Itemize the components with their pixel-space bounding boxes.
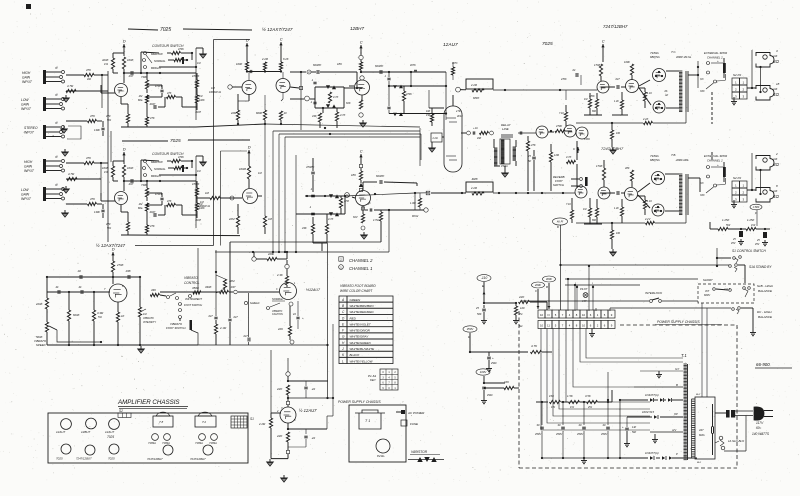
svg-text:6 BO: 6 BO (584, 137, 590, 141)
svg-text:22K: 22K (276, 387, 283, 391)
svg-text:M812: M812 (412, 215, 419, 218)
svg-text:45AF: 45AF (487, 394, 493, 397)
svg-text:S1: S1 (519, 324, 523, 328)
svg-text:C: C (360, 40, 363, 45)
svg-text:.01: .01 (55, 285, 59, 289)
svg-text:.047: .047 (615, 78, 620, 81)
svg-text:10: 10 (582, 313, 586, 317)
svg-text:T.1: T.1 (681, 353, 687, 358)
svg-text:820PF: 820PF (375, 64, 384, 68)
svg-text:½ 12AU7: ½ 12AU7 (299, 408, 317, 413)
svg-text:CHANNEL 2: CHANNEL 2 (707, 56, 723, 60)
svg-text:2.5F: 2.5F (455, 110, 461, 113)
svg-text:66-900: 66-900 (756, 362, 770, 367)
svg-text:HIGH: HIGH (24, 160, 33, 164)
svg-text:4Ω: 4Ω (773, 92, 779, 97)
svg-text:12AU7: 12AU7 (443, 42, 458, 48)
svg-text:BLK: BLK (696, 394, 701, 396)
svg-text:AMPLIFIER CHASSIS: AMPLIFIER CHASSIS (117, 399, 180, 406)
svg-text:GREEN: GREEN (350, 298, 362, 302)
svg-text:WHITE/RED/RED: WHITE/RED/RED (350, 310, 375, 314)
svg-text:15K: 15K (549, 394, 554, 398)
svg-text:INPUT: INPUT (24, 130, 35, 134)
svg-text:-110: -110 (481, 276, 488, 280)
svg-text:47K: 47K (86, 156, 91, 160)
svg-text:50F: 50F (632, 431, 637, 434)
svg-text:WHITE/VIOLET: WHITE/VIOLET (350, 322, 372, 326)
svg-text:-66PF: -66PF (471, 178, 478, 181)
svg-text:47K: 47K (90, 197, 95, 201)
svg-text:10: 10 (582, 323, 586, 327)
svg-text:12BU7: 12BU7 (81, 430, 91, 434)
svg-text:447: 447 (699, 428, 704, 432)
svg-text:2.2K: 2.2K (642, 117, 649, 121)
svg-text:7.1K: 7.1K (559, 112, 564, 115)
svg-text:100F: 100F (127, 166, 134, 170)
svg-text:4.7K: 4.7K (566, 155, 572, 159)
svg-text:180: 180 (616, 232, 621, 235)
svg-text:T.C.: T.C. (671, 50, 677, 54)
svg-text:WHITE/GRAY: WHITE/GRAY (350, 335, 370, 339)
svg-text:BLACK: BLACK (350, 353, 361, 357)
svg-text:1.1K: 1.1K (647, 200, 652, 203)
svg-text:WHITE/BRN/BRN: WHITE/BRN/BRN (350, 304, 375, 308)
svg-text:5W: 5W (726, 223, 731, 227)
svg-text:12AU7: 12AU7 (105, 430, 115, 434)
svg-text:VIBRATO: VIBRATO (184, 276, 198, 280)
svg-text:140 WATTS: 140 WATTS (752, 432, 770, 436)
svg-text:22K: 22K (277, 327, 283, 331)
svg-text:JAK: JAK (773, 158, 778, 161)
svg-text:GAIN: GAIN (21, 192, 30, 196)
svg-text:43K: 43K (312, 114, 317, 118)
svg-text:7025: 7025 (160, 27, 171, 33)
svg-text:VIBRATO: VIBRATO (143, 317, 154, 320)
svg-text:.02: .02 (77, 269, 81, 273)
svg-text:7189A: 7189A (209, 441, 217, 445)
svg-text:.22: .22 (311, 387, 316, 391)
svg-text:4.7M: 4.7M (67, 84, 74, 88)
svg-text:P: P (676, 452, 678, 456)
svg-text:47K: 47K (167, 200, 172, 203)
svg-text:BLK: BLK (697, 462, 702, 464)
svg-text:1M: 1M (199, 95, 202, 98)
svg-text:EXTERNAL SPKR: EXTERNAL SPKR (704, 51, 727, 55)
svg-text:11: 11 (547, 323, 550, 327)
svg-text:ON: ON (700, 79, 704, 81)
svg-text:47K: 47K (150, 224, 155, 228)
svg-text:350V: 350V (467, 327, 475, 331)
svg-text:+: + (492, 356, 494, 360)
svg-text:180: 180 (616, 132, 621, 135)
svg-text:POWER SUPPLY CHASSIS: POWER SUPPLY CHASSIS (338, 400, 381, 404)
svg-text:16K: 16K (426, 110, 431, 113)
svg-text:7189A: 7189A (162, 441, 170, 445)
svg-text:.047: .047 (233, 316, 238, 319)
svg-text:43K: 43K (151, 288, 156, 292)
svg-text:.01: .01 (78, 285, 82, 289)
svg-text:1K: 1K (121, 314, 125, 318)
svg-text:1M: 1M (584, 98, 587, 101)
svg-text:220K: 220K (35, 302, 43, 306)
svg-text:7189A: 7189A (195, 441, 203, 445)
svg-text:2W: 2W (587, 405, 592, 409)
svg-text:+: + (717, 163, 719, 167)
svg-text:1M: 1M (583, 208, 586, 211)
svg-text:82K: 82K (346, 101, 351, 105)
svg-text:470K: 470K (178, 156, 184, 159)
svg-text:C: C (360, 149, 363, 154)
svg-text:100K: 100K (236, 62, 242, 66)
svg-text:100V: 100V (480, 370, 488, 374)
svg-text:450V: 450V (601, 432, 607, 436)
svg-text:170K: 170K (594, 63, 601, 67)
svg-text:12BH7: 12BH7 (350, 26, 364, 31)
svg-text:7247/12BH7: 7247/12BH7 (601, 146, 624, 151)
svg-text:S1 CONTROL SWITCH: S1 CONTROL SWITCH (732, 249, 766, 253)
svg-text:200F: 200F (534, 283, 541, 287)
svg-text:45V: 45V (755, 243, 760, 246)
svg-text:400: 400 (87, 78, 92, 81)
svg-text:AC POWER: AC POWER (407, 411, 425, 415)
svg-text:470HF: 470HF (192, 75, 200, 78)
svg-text:AF: AF (664, 94, 669, 97)
svg-text:BAL: BAL (138, 206, 143, 210)
svg-text:1.4F: 1.4F (614, 100, 619, 103)
svg-text:½12AU7: ½12AU7 (306, 288, 321, 292)
svg-text:SHORT: SHORT (703, 278, 713, 282)
svg-text:2.3K: 2.3K (276, 273, 283, 277)
svg-text:7247/12BH7: 7247/12BH7 (147, 457, 163, 461)
svg-text:OFF: OFF (700, 195, 705, 197)
svg-text:S1B - HIGH: S1B - HIGH (757, 284, 774, 288)
svg-text:1A SLO-BLO: 1A SLO-BLO (728, 439, 745, 443)
svg-text:EXTERNAL SPKR: EXTERNAL SPKR (704, 154, 727, 158)
svg-text:50F: 50F (477, 312, 482, 316)
svg-text:S1: S1 (250, 417, 254, 421)
svg-text:C: C (280, 37, 283, 42)
svg-text:OFF: OFF (700, 91, 705, 93)
svg-text:1%: 1% (104, 170, 109, 174)
svg-text:7025: 7025 (56, 457, 63, 461)
svg-text:WHITE/BL/WHITE: WHITE/BL/WHITE (350, 347, 376, 351)
svg-text:.048: .048 (125, 269, 131, 273)
svg-text:.047: .047 (243, 335, 248, 338)
svg-text:HI FI: HI FI (557, 220, 564, 224)
svg-text:4.7K: 4.7K (328, 217, 334, 221)
svg-text:S2 P2: S2 P2 (733, 73, 742, 77)
svg-text:NORMAL: NORMAL (272, 297, 284, 301)
svg-text:18: 18 (776, 82, 780, 86)
svg-text:100K: 100K (199, 99, 205, 102)
svg-text:INPUT: INPUT (24, 169, 35, 173)
svg-text:S2: S2 (119, 409, 123, 413)
svg-text:350K: 350K (192, 286, 200, 290)
svg-text:+: + (717, 59, 719, 63)
svg-text:CAUTION: CAUTION (272, 313, 283, 316)
svg-text:B: B (676, 383, 678, 387)
svg-text:3.3M: 3.3M (97, 311, 104, 315)
svg-text:100K: 100K (127, 58, 134, 62)
svg-text:117V: 117V (756, 421, 764, 425)
svg-text:.047: .047 (128, 182, 134, 186)
svg-text:P1: P1 (519, 312, 523, 316)
svg-text:CHANNEL 2: CHANNEL 2 (349, 258, 373, 263)
svg-text:47K: 47K (90, 114, 95, 118)
svg-text:12M: 12M (554, 153, 560, 157)
svg-text:600V: 600V (704, 293, 710, 297)
svg-text:450V: 450V (577, 432, 583, 436)
svg-text:B: B (557, 225, 559, 229)
svg-text:JAK: JAK (773, 88, 778, 91)
svg-text:8Ω: 8Ω (773, 59, 779, 64)
svg-text:730K: 730K (141, 183, 147, 187)
svg-text:INPUT: INPUT (21, 107, 32, 111)
svg-text:170K: 170K (596, 164, 603, 168)
svg-text:15F: 15F (426, 114, 431, 117)
svg-text:2.2V: 2.2V (644, 217, 651, 221)
svg-text:INT: INT (705, 289, 710, 293)
svg-text:25AF: 25AF (490, 362, 497, 365)
svg-text:60≈: 60≈ (756, 426, 762, 430)
svg-text:VARISTOR: VARISTOR (411, 450, 428, 454)
svg-text:180MW×11: 180MW×11 (198, 205, 211, 208)
svg-text:48F: 48F (625, 166, 630, 170)
svg-text:5W: 5W (107, 226, 111, 230)
svg-text:FOOT SWITCH: FOOT SWITCH (166, 326, 187, 330)
svg-text:47K: 47K (150, 116, 155, 120)
svg-text:A: A (51, 134, 54, 138)
svg-text:D: D (123, 147, 126, 152)
svg-text:5F: 5F (528, 159, 531, 163)
svg-text:C: C (602, 39, 605, 44)
svg-text:40MF-MDL: 40MF-MDL (676, 158, 690, 162)
svg-text:2.2M: 2.2M (258, 422, 266, 426)
svg-text:2.2M: 2.2M (261, 57, 269, 61)
svg-text:270K: 270K (116, 263, 124, 267)
svg-text:7189A: 7189A (148, 441, 156, 445)
svg-text:1.1K: 1.1K (647, 92, 652, 95)
svg-text:820K: 820K (73, 313, 80, 317)
svg-text:7247/12BU7: 7247/12BU7 (76, 457, 92, 461)
svg-text:SHIELD: SHIELD (250, 301, 259, 305)
svg-text:730K: 730K (141, 75, 147, 79)
svg-text:STEREO: STEREO (24, 126, 38, 130)
svg-text:LOW: LOW (21, 188, 29, 192)
svg-text:7025: 7025 (542, 41, 553, 47)
svg-text:4Ω: 4Ω (773, 194, 779, 199)
svg-text:JAK: JAK (773, 55, 778, 58)
svg-text:130F: 130F (94, 210, 100, 214)
svg-text:25: 25 (475, 306, 479, 310)
svg-text:RED: RED (350, 316, 357, 320)
svg-text:1.25K: 1.25K (722, 218, 729, 222)
svg-text:1N4377(A): 1N4377(A) (645, 393, 659, 397)
svg-text:22: 22 (292, 312, 296, 316)
svg-text:22M: 22M (230, 111, 237, 115)
svg-text:7247/12BH7: 7247/12BH7 (190, 457, 206, 461)
svg-text:450V: 450V (556, 432, 562, 436)
svg-text:A: A (341, 298, 344, 302)
svg-text:4.7K: 4.7K (531, 344, 538, 348)
svg-text:4.7K: 4.7K (333, 95, 339, 99)
svg-text:SWITCH: SWITCH (553, 183, 565, 187)
svg-text:INTERLOCK: INTERLOCK (645, 291, 663, 295)
svg-text:½ 12AX7/7247: ½ 12AX7/7247 (262, 26, 293, 32)
svg-text:470: 470 (106, 222, 111, 226)
svg-text:1M: 1M (268, 217, 273, 221)
svg-text:GAIN: GAIN (24, 164, 33, 168)
svg-text:1%: 1% (104, 62, 109, 66)
svg-text:10: 10 (540, 323, 544, 327)
svg-text:GAIN: GAIN (21, 102, 30, 106)
svg-text:100F: 100F (624, 60, 630, 64)
svg-text:2: 2 (775, 152, 778, 156)
svg-text:470K: 470K (178, 48, 184, 51)
svg-text:SPEED: SPEED (36, 343, 45, 347)
svg-text:.047: .047 (128, 74, 134, 78)
svg-text:7.1K: 7.1K (566, 203, 571, 206)
svg-text:860: 860 (592, 219, 597, 222)
svg-text:OP: OP (674, 412, 678, 416)
svg-text:D: D (112, 247, 115, 252)
svg-text:1N4377(A): 1N4377(A) (645, 451, 659, 455)
svg-text:.0047: .0047 (149, 103, 156, 106)
svg-text:CONTROL: CONTROL (184, 281, 200, 285)
svg-text:8Ω: 8Ω (773, 162, 779, 167)
svg-text:4.7M: 4.7M (68, 172, 75, 176)
svg-text:A/V: A/V (671, 428, 676, 432)
svg-text:.047: .047 (230, 285, 236, 289)
svg-text:12AU7: 12AU7 (56, 430, 66, 434)
svg-text:7247/12BH7: 7247/12BH7 (603, 24, 628, 29)
svg-text:180MW×11: 180MW×11 (209, 91, 222, 94)
svg-text:2.2M: 2.2M (470, 83, 478, 87)
svg-text:D: D (246, 38, 249, 43)
svg-text:NORMAL: NORMAL (154, 59, 166, 63)
svg-text:14F: 14F (632, 426, 637, 429)
svg-text:.0047: .0047 (149, 211, 156, 214)
svg-text:.0047: .0047 (195, 111, 202, 114)
svg-text:1.25K: 1.25K (747, 218, 754, 222)
svg-text:450V: 450V (535, 432, 541, 436)
svg-text:7025: 7025 (170, 138, 181, 144)
svg-text:1W: 1W (570, 405, 574, 409)
svg-text:2.2M: 2.2M (470, 186, 478, 190)
svg-text:860: 860 (592, 110, 597, 113)
svg-text:KEY: KEY (370, 378, 377, 382)
svg-text:.22: .22 (311, 436, 316, 440)
svg-text:47K: 47K (167, 92, 172, 95)
svg-text:DC - HIGH: DC - HIGH (757, 310, 772, 314)
svg-text:1.5K: 1.5K (567, 394, 573, 398)
svg-text:S2 P2: S2 P2 (733, 176, 742, 180)
svg-text:6V11L: 6V11L (377, 454, 385, 458)
svg-text:600K: 600K (256, 111, 262, 115)
svg-text:HIGH: HIGH (22, 71, 31, 75)
svg-text:.0047: .0047 (195, 219, 202, 222)
svg-text:22K: 22K (276, 434, 283, 438)
svg-text:1.5MF: 1.5MF (753, 206, 760, 209)
svg-text:VIBRATO FOOT BOARD: VIBRATO FOOT BOARD (340, 284, 376, 288)
svg-text:T 1: T 1 (365, 419, 370, 423)
svg-text:820PF: 820PF (313, 63, 322, 67)
svg-text:6MA: 6MA (699, 433, 705, 437)
svg-text:82V: 82V (353, 215, 358, 219)
svg-text:WIRE COLOR CHART: WIRE COLOR CHART (340, 289, 373, 293)
svg-text:470HF: 470HF (192, 183, 200, 186)
svg-text:18K: 18K (337, 62, 342, 66)
svg-text:270K: 270K (560, 78, 567, 81)
svg-text:6BQ5A: 6BQ5A (650, 55, 660, 59)
svg-text:1M: 1M (205, 191, 210, 195)
svg-text:4.7K: 4.7K (340, 113, 346, 117)
svg-text:NORMAL: NORMAL (154, 167, 166, 171)
svg-text:470K: 470K (556, 124, 562, 128)
svg-text:+: + (302, 316, 304, 320)
svg-text:INSTRUMENT: INSTRUMENT (185, 297, 202, 301)
svg-text:BAL: BAL (138, 98, 143, 102)
svg-text:470K: 470K (406, 93, 412, 96)
svg-text:4.7M: 4.7M (373, 219, 378, 222)
svg-text:LOW: LOW (21, 98, 29, 102)
svg-text:S1A STAND BY: S1A STAND BY (749, 265, 772, 269)
svg-text:7025: 7025 (107, 435, 114, 439)
svg-text:JAK: JAK (773, 190, 778, 193)
svg-text:WHITE/OR/OR: WHITE/OR/OR (350, 329, 371, 333)
svg-text:300F: 300F (546, 277, 552, 281)
svg-text:B: B (546, 285, 548, 289)
svg-text:45V: 45V (731, 242, 736, 245)
svg-text:3.5K: 3.5K (585, 394, 591, 398)
svg-text:1W: 1W (751, 223, 756, 227)
svg-text:68PF: 68PF (473, 96, 480, 100)
svg-text:G/Y: G/Y (675, 368, 680, 371)
svg-text:D: D (248, 145, 251, 150)
svg-text:.047: .047 (208, 315, 213, 318)
svg-text:CHANNEL 2: CHANNEL 2 (707, 159, 723, 163)
svg-text:18K: 18K (351, 173, 356, 177)
svg-text:POWER SUPPLY CHASSIS: POWER SUPPLY CHASSIS (657, 320, 700, 324)
svg-text:T.B.: T.B. (671, 153, 676, 157)
svg-text:BALANCE: BALANCE (758, 289, 773, 293)
svg-text:WHITE/GREEN: WHITE/GREEN (350, 341, 372, 345)
svg-text:2.2Ω: 2.2Ω (432, 137, 438, 140)
svg-text:WHITE/YELLOW: WHITE/YELLOW (350, 359, 374, 363)
svg-text:10: 10 (540, 313, 544, 317)
svg-text:1W: 1W (551, 405, 555, 409)
svg-text:22K: 22K (518, 295, 525, 299)
svg-text:FOOT SWITCH: FOOT SWITCH (184, 303, 202, 307)
svg-text:47K: 47K (86, 68, 91, 72)
svg-text:1.4F: 1.4F (614, 207, 619, 210)
svg-text:1.0M: 1.0M (410, 202, 416, 205)
svg-text:INPUT: INPUT (22, 80, 33, 84)
svg-text:40MP-VR-SL: 40MP-VR-SL (676, 55, 692, 59)
svg-text:PILOT: PILOT (580, 287, 588, 291)
svg-text:6BQ5A: 6BQ5A (650, 158, 660, 162)
svg-text:330K: 330K (205, 285, 212, 289)
svg-text:12F: 12F (520, 306, 525, 310)
svg-text:INPUT: INPUT (21, 197, 32, 201)
svg-text:.1F: .1F (283, 111, 287, 115)
svg-text:49K: 49K (477, 137, 482, 140)
svg-text:8.2K: 8.2K (283, 57, 289, 61)
svg-text:470: 470 (106, 114, 111, 118)
svg-text:7025: 7025 (108, 457, 115, 461)
svg-text:43K: 43K (302, 226, 307, 230)
svg-text:FUSE: FUSE (410, 422, 419, 426)
